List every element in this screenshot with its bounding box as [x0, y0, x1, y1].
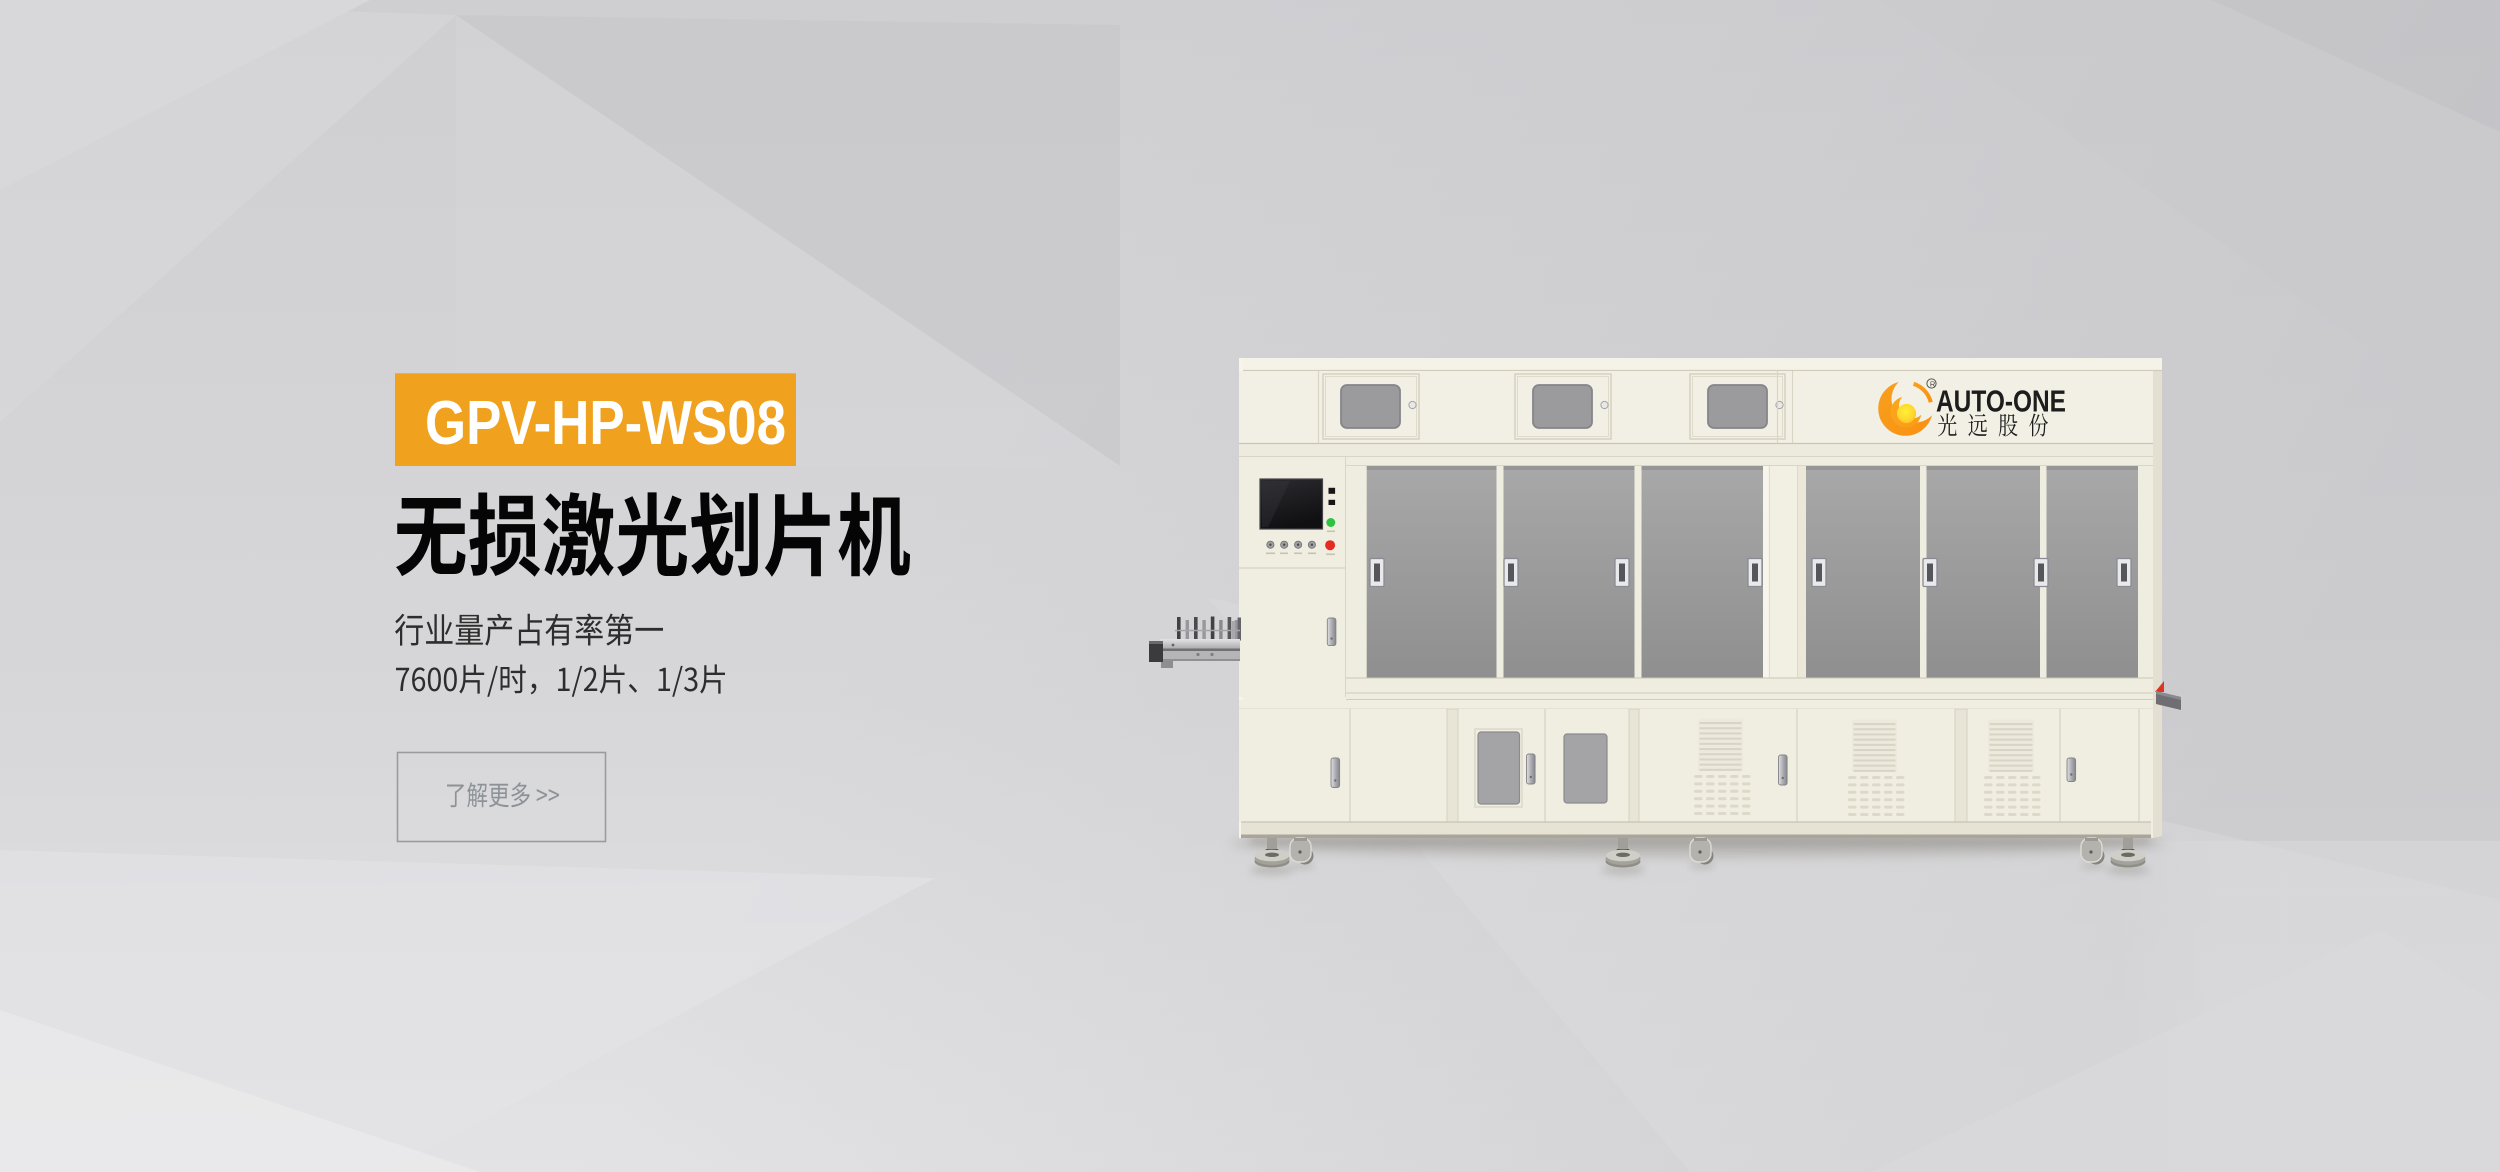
svg-text:R: R	[1930, 379, 1936, 388]
svg-text:AUTO-ONE: AUTO-ONE	[1936, 385, 2066, 419]
svg-text:GPV-HP-WS08: GPV-HP-WS08	[425, 389, 786, 458]
